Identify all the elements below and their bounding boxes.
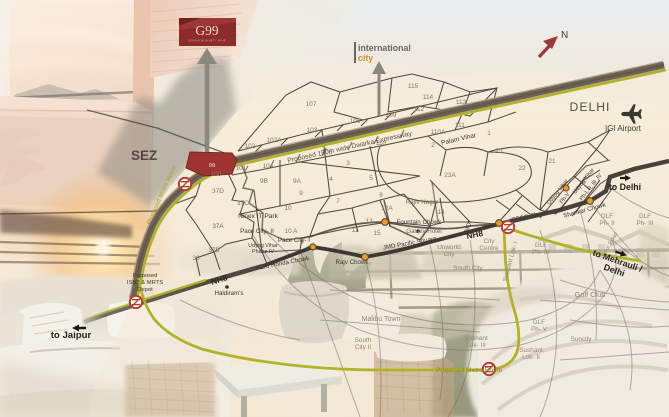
svg-text:99: 99 — [209, 163, 215, 169]
svg-text:Phase IV: Phase IV — [252, 249, 274, 255]
svg-text:DLF: DLF — [639, 213, 651, 220]
svg-text:109: 109 — [386, 112, 397, 119]
svg-text:Malibu Town: Malibu Town — [362, 316, 401, 323]
svg-text:IGI Airport: IGI Airport — [605, 124, 642, 133]
svg-text:102A: 102A — [266, 137, 282, 144]
svg-text:Sushant: Sushant — [519, 347, 543, 354]
svg-text:2: 2 — [431, 142, 435, 149]
svg-text:4: 4 — [329, 176, 333, 183]
svg-text:international: international — [358, 43, 411, 53]
svg-text:10 A: 10 A — [284, 228, 298, 235]
svg-text:Ph- III: Ph- III — [636, 220, 653, 227]
svg-text:to Delhi: to Delhi — [609, 182, 641, 192]
svg-text:DELHI: DELHI — [570, 100, 611, 114]
svg-text:Pace City- II: Pace City- II — [240, 228, 274, 235]
svg-text:22: 22 — [518, 165, 526, 172]
svg-text:Suncity: Suncity — [571, 336, 593, 343]
svg-text:to Jaipur: to Jaipur — [51, 330, 92, 341]
svg-text:104: 104 — [263, 163, 274, 170]
svg-text:ISBT & MRTS: ISBT & MRTS — [127, 280, 163, 286]
svg-text:City: City — [483, 238, 495, 245]
svg-text:14: 14 — [437, 209, 445, 216]
svg-text:Ninex IT Park: Ninex IT Park — [238, 213, 279, 220]
svg-text:Pace City- I: Pace City- I — [278, 237, 310, 244]
svg-text:115: 115 — [408, 83, 419, 90]
svg-text:Haldiram's: Haldiram's — [214, 290, 243, 297]
svg-text:Rajv Chowk: Rajv Chowk — [335, 259, 369, 266]
svg-text:Galaxy Hotel: Galaxy Hotel — [406, 228, 441, 235]
svg-text:37D: 37D — [212, 188, 224, 195]
svg-text:GURGAON NINETY NINE: GURGAON NINETY NINE — [188, 39, 226, 43]
svg-text:111: 111 — [455, 122, 465, 129]
svg-text:city: city — [358, 53, 373, 63]
svg-text:110A: 110A — [431, 129, 446, 136]
svg-text:3: 3 — [346, 160, 350, 167]
svg-text:Golf Club: Golf Club — [575, 290, 606, 299]
svg-text:Lok- III: Lok- III — [466, 342, 486, 349]
svg-text:13: 13 — [365, 218, 373, 225]
svg-text:113: 113 — [456, 99, 467, 106]
svg-text:N: N — [561, 30, 568, 41]
svg-text:South City: South City — [453, 265, 483, 272]
svg-text:21: 21 — [548, 158, 556, 165]
svg-text:36: 36 — [192, 255, 200, 262]
svg-text:37C: 37C — [237, 200, 249, 207]
svg-text:Rajiv Nagar: Rajiv Nagar — [406, 199, 438, 206]
svg-text:Depot: Depot — [137, 287, 153, 293]
svg-text:107: 107 — [306, 101, 317, 108]
svg-text:6: 6 — [379, 192, 383, 199]
svg-text:Unworld: Unworld — [437, 244, 461, 251]
svg-text:9A: 9A — [293, 178, 302, 185]
svg-text:DLF: DLF — [535, 242, 547, 249]
svg-text:10: 10 — [284, 205, 292, 212]
svg-text:103: 103 — [307, 127, 318, 134]
svg-text:DLF: DLF — [533, 319, 545, 326]
svg-text:114: 114 — [423, 94, 434, 101]
svg-text:SEZ: SEZ — [131, 148, 157, 163]
svg-text:101: 101 — [236, 165, 247, 172]
svg-text:City II: City II — [355, 344, 372, 351]
svg-text:G99: G99 — [195, 23, 218, 38]
svg-text:12A: 12A — [381, 205, 393, 212]
svg-text:DLF: DLF — [601, 213, 613, 220]
svg-text:Lok- II: Lok- II — [522, 354, 540, 361]
svg-text:106: 106 — [350, 118, 361, 125]
svg-text:7: 7 — [336, 198, 340, 205]
svg-text:11: 11 — [352, 227, 359, 234]
svg-text:102: 102 — [245, 143, 256, 150]
svg-text:Sushant: Sushant — [464, 335, 488, 342]
svg-text:100: 100 — [211, 171, 222, 178]
svg-text:Proposed: Proposed — [133, 273, 158, 279]
svg-text:South: South — [355, 337, 372, 344]
svg-text:Ph- II: Ph- II — [599, 220, 614, 227]
svg-text:23A: 23A — [444, 172, 456, 179]
svg-text:15: 15 — [373, 230, 381, 237]
svg-text:37B: 37B — [208, 247, 219, 254]
svg-text:9B: 9B — [260, 178, 268, 185]
svg-text:Ph- V: Ph- V — [531, 326, 548, 333]
svg-text:23: 23 — [495, 148, 503, 155]
svg-text:9: 9 — [299, 190, 303, 197]
svg-text:112: 112 — [414, 106, 425, 113]
svg-text:Centre: Centre — [479, 245, 499, 252]
svg-text:5: 5 — [369, 175, 373, 182]
svg-text:1: 1 — [487, 130, 491, 137]
svg-text:37A: 37A — [212, 223, 224, 230]
svg-text:Proposed Metro Route: Proposed Metro Route — [436, 367, 503, 374]
svg-text:Ph- IV: Ph- IV — [532, 249, 550, 256]
svg-text:Fountain Chowk: Fountain Chowk — [397, 219, 443, 226]
svg-text:City: City — [443, 251, 455, 258]
